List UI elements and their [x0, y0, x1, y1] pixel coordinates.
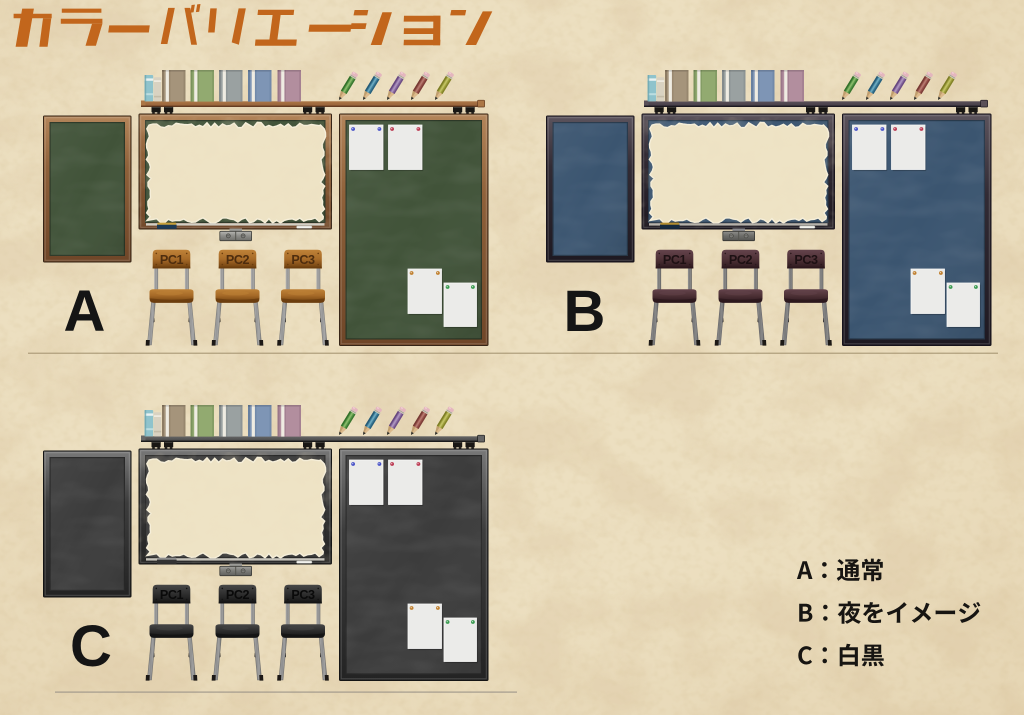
svg-text:C: C — [70, 614, 112, 679]
svg-text:PC3: PC3 — [794, 253, 818, 267]
svg-text:PC2: PC2 — [226, 588, 250, 602]
svg-text:PC1: PC1 — [160, 588, 184, 602]
svg-text:PC3: PC3 — [291, 253, 315, 267]
svg-text:PC3: PC3 — [291, 588, 315, 602]
svg-text:PC2: PC2 — [729, 253, 753, 267]
svg-text:PC1: PC1 — [160, 253, 184, 267]
svg-text:PC2: PC2 — [226, 253, 250, 267]
svg-text:PC1: PC1 — [663, 253, 687, 267]
svg-text:A: A — [64, 279, 106, 344]
svg-text:B: B — [564, 279, 606, 344]
